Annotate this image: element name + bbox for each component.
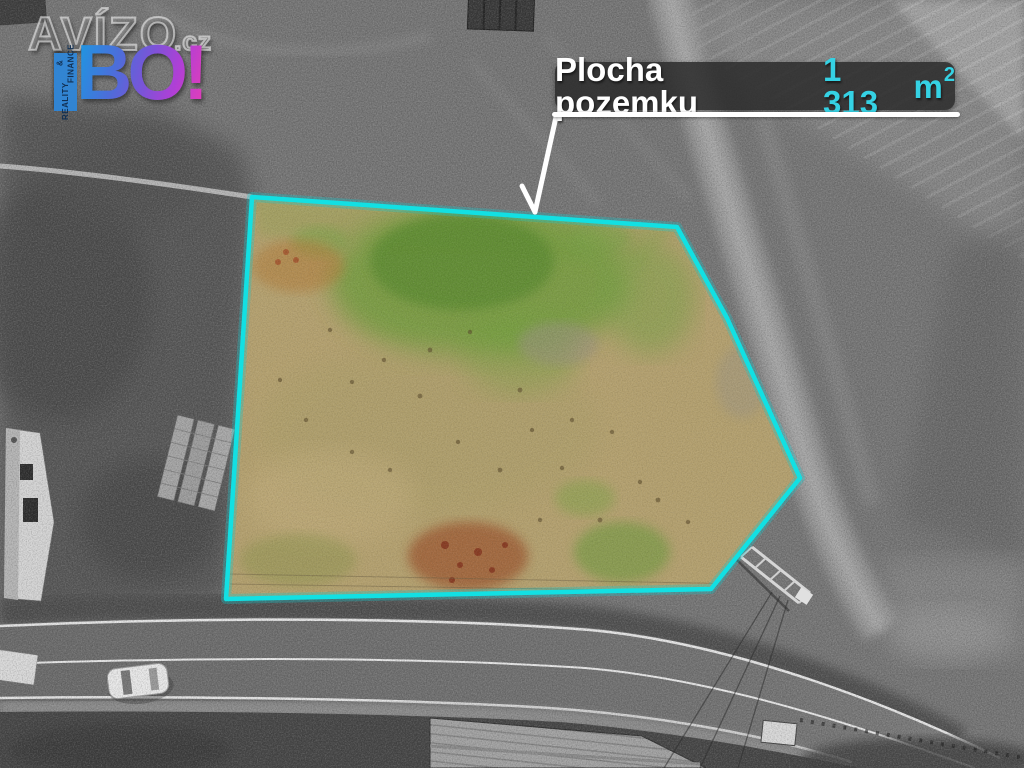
area-label: Plocha pozemku <box>555 53 812 119</box>
callout-underline <box>552 112 960 117</box>
area-callout-box: Plocha pozemku 1 313 m 2 <box>555 62 955 110</box>
finance-text: & FINANCE <box>55 44 77 83</box>
area-unit: m <box>914 70 943 103</box>
reality-text: REALITY <box>60 83 71 121</box>
bo-logo-row: REALITY & FINANCE BO! <box>28 43 212 111</box>
reality-finance-tab: REALITY & FINANCE <box>54 53 77 111</box>
watermark-logo: AVÍZO.cz REALITY & FINANCE BO! <box>28 10 212 111</box>
area-exponent: 2 <box>944 65 955 85</box>
area-value: 1 313 <box>823 53 905 119</box>
aerial-photo: AVÍZO.cz REALITY & FINANCE BO! Plocha po… <box>0 0 1024 768</box>
bo-logo-text: BO! <box>76 37 204 111</box>
